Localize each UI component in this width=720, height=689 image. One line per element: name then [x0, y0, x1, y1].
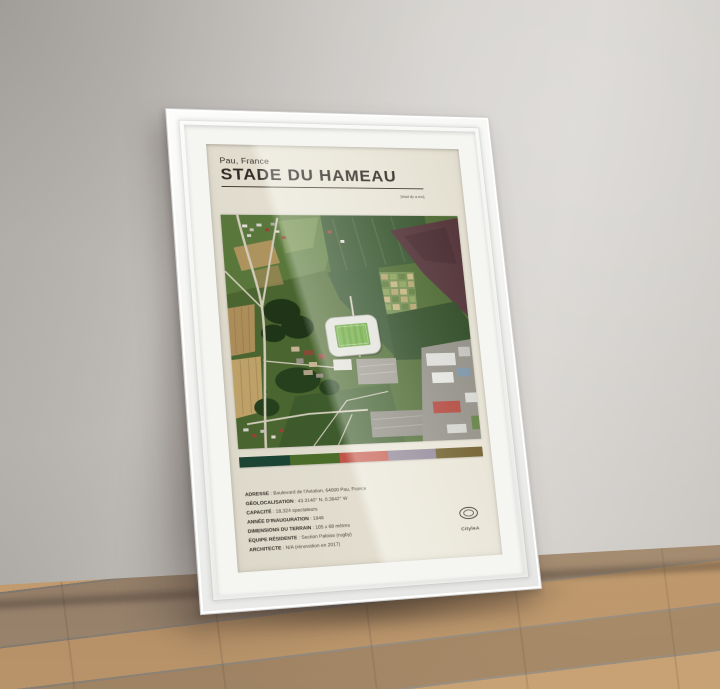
palette-swatch: [290, 453, 341, 465]
stadium: [324, 314, 384, 359]
palette-swatch: [435, 447, 483, 459]
brand-logo-icon: [458, 506, 479, 520]
aerial-map: [221, 215, 482, 449]
palette-swatch: [339, 451, 389, 463]
aerial-photo: [221, 215, 482, 449]
picture-frame: Pau, France STADE DU HAMEAU [stad dy a.m…: [165, 108, 542, 615]
brand-logo-text-wrap: CityleA: [448, 518, 492, 527]
palette-swatch: [388, 449, 437, 461]
pronunciation-wrap: [stad dy a.mo]: [222, 187, 424, 195]
poster-header: Pau, France STADE DU HAMEAU [stad dy a.m…: [219, 156, 424, 195]
poster-title: STADE DU HAMEAU: [220, 166, 423, 186]
industrial-zone: [413, 339, 481, 441]
poster: Pau, France STADE DU HAMEAU [stad dy a.m…: [206, 144, 502, 573]
frame-mat: Pau, France STADE DU HAMEAU [stad dy a.m…: [184, 125, 524, 596]
palette-swatch: [239, 455, 291, 468]
pronunciation-text: [stad dy a.mo]: [400, 195, 424, 199]
brand-logo-text: CityleA: [461, 525, 480, 532]
brand-logo: CityleA: [446, 505, 491, 526]
harvest-field-1: [227, 304, 258, 356]
color-palette: [239, 447, 483, 468]
